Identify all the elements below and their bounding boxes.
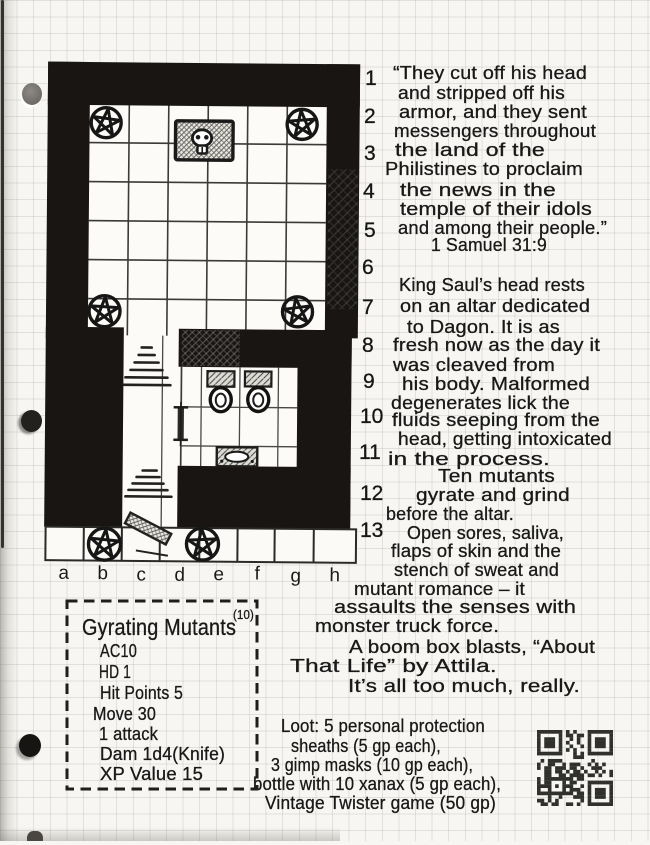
svg-text:e: e [213, 564, 224, 585]
svg-text:f: f [254, 563, 260, 584]
svg-text:c: c [136, 564, 146, 585]
svg-text:h: h [329, 565, 340, 586]
svg-text:d: d [174, 565, 185, 586]
svg-text:b: b [97, 563, 108, 584]
svg-text:a: a [58, 563, 69, 584]
svg-text:g: g [290, 566, 301, 587]
